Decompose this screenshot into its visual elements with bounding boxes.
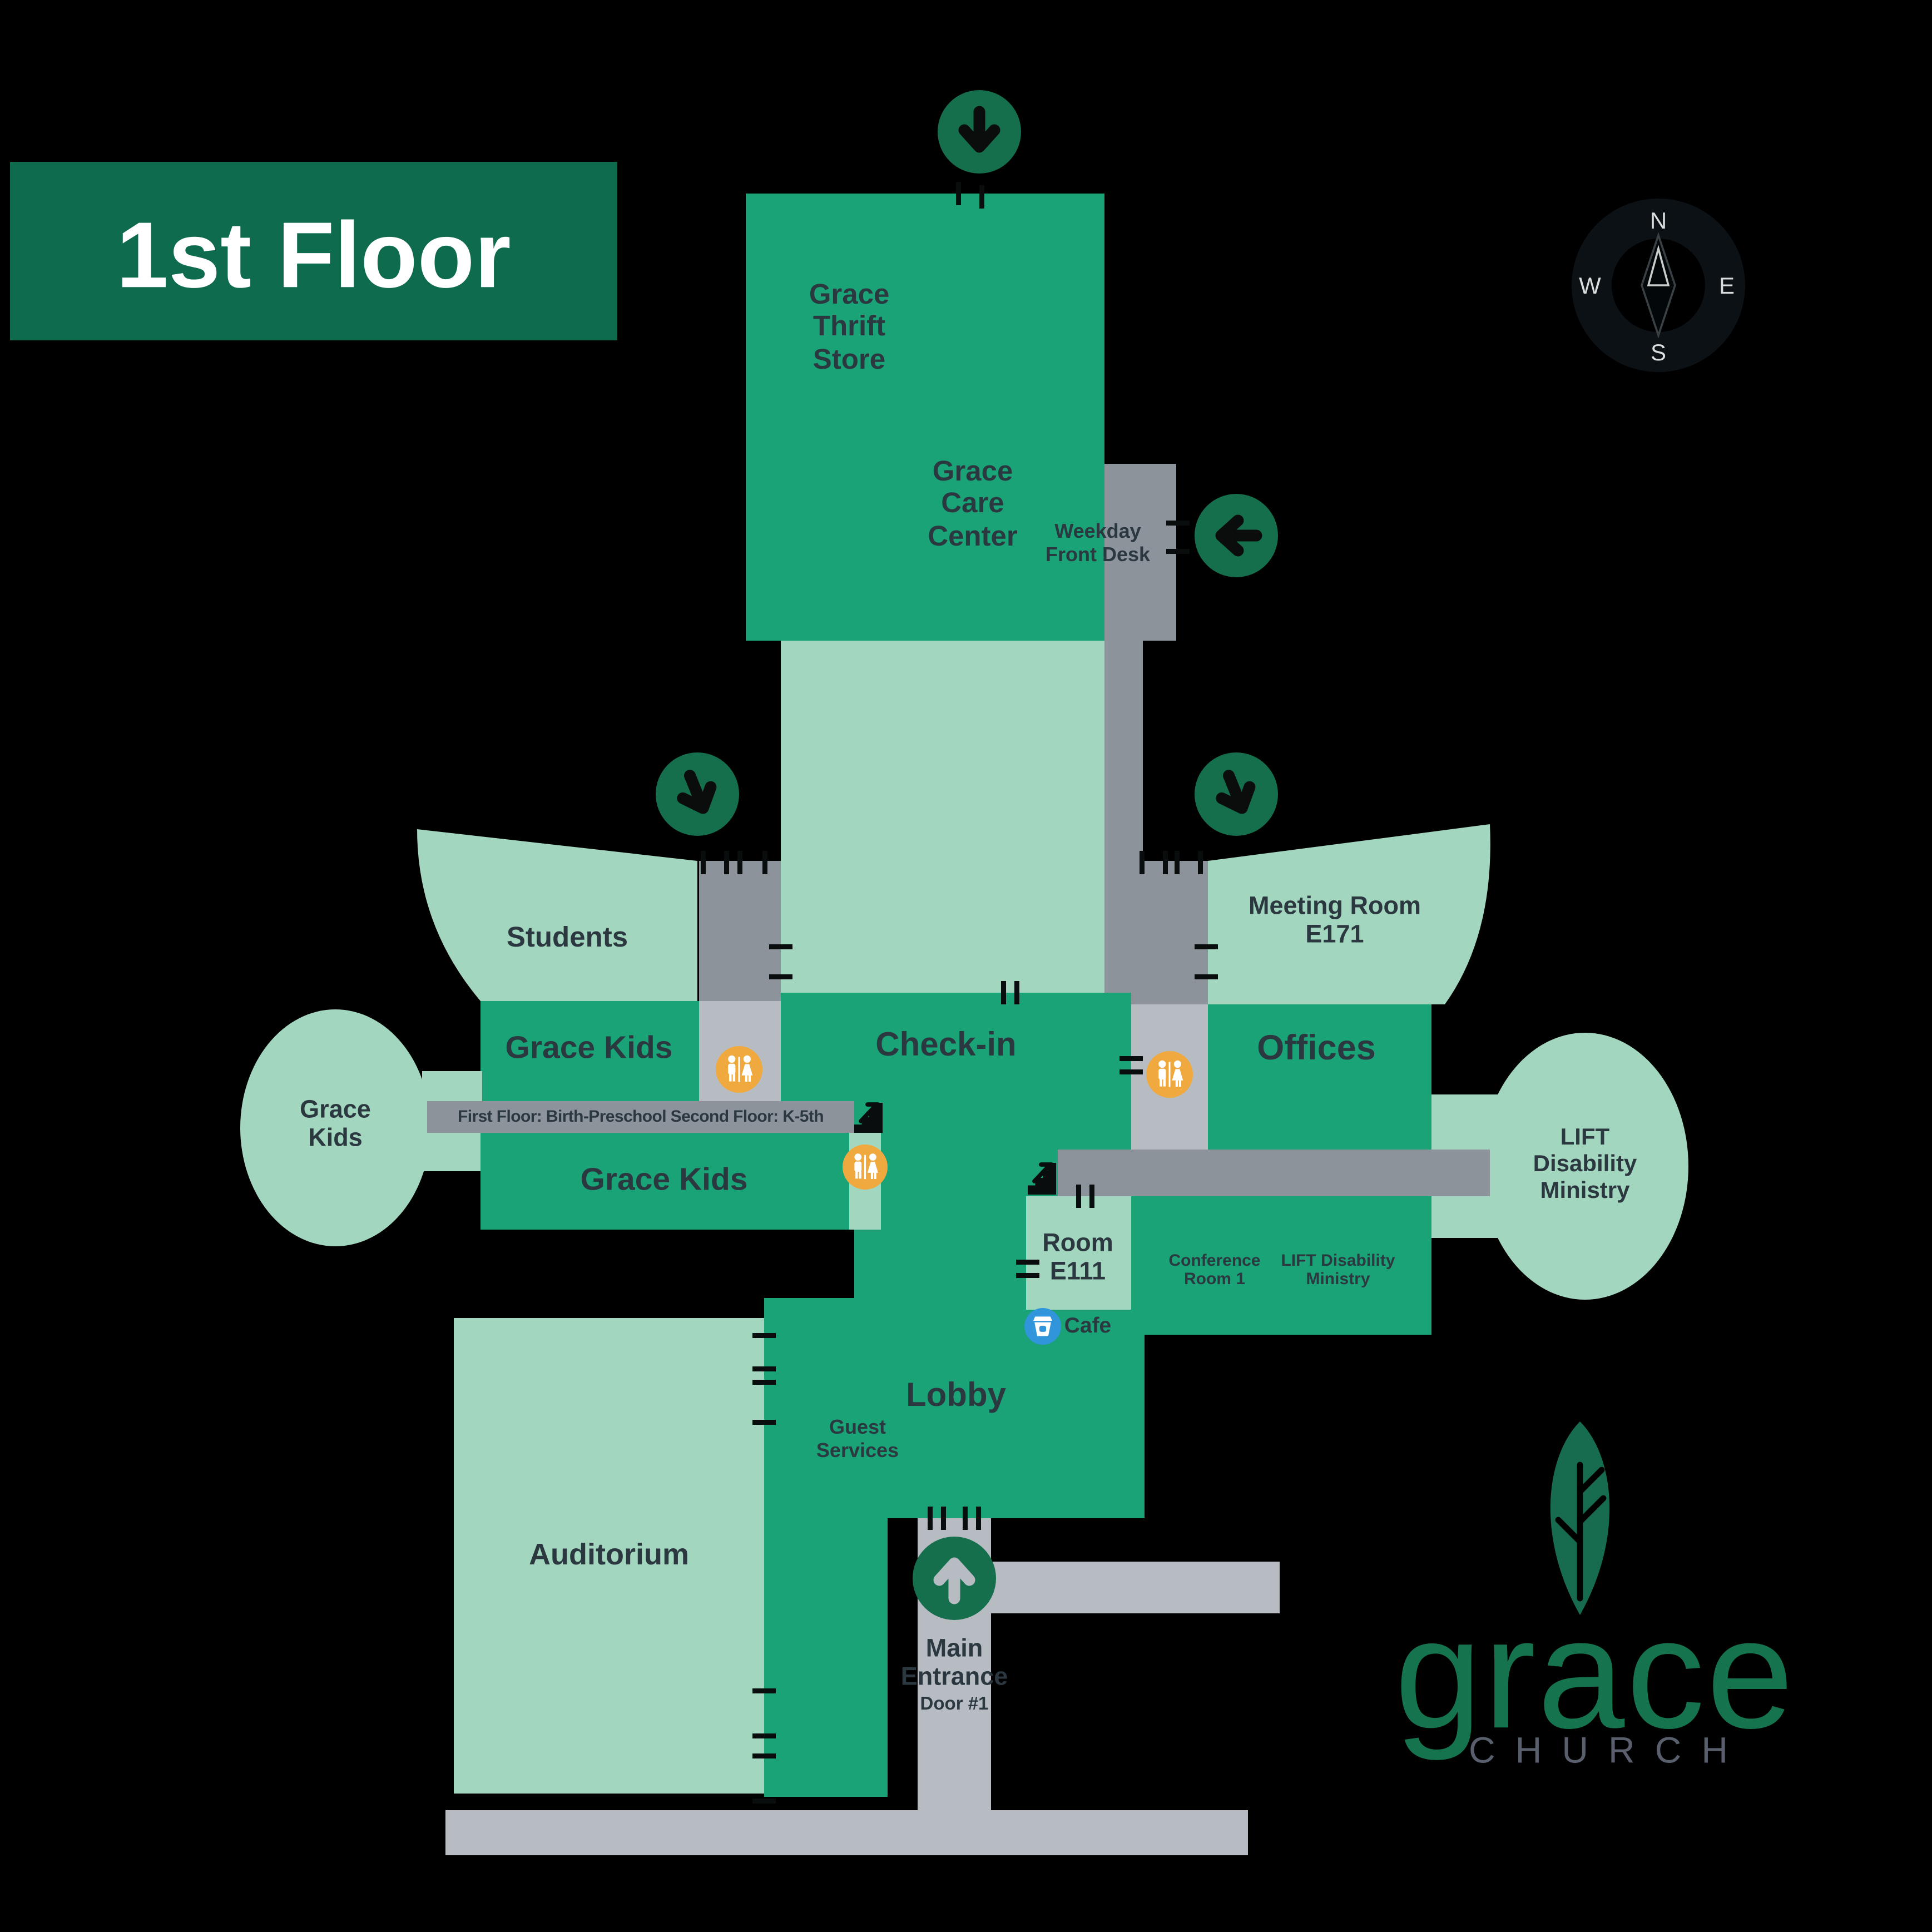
door-1-label: Door #1	[920, 1695, 989, 1716]
entrance-arrow-down-top-icon	[938, 90, 1021, 174]
door-tick	[752, 1366, 776, 1371]
door-tick	[762, 851, 767, 874]
door-tick	[1076, 1185, 1081, 1208]
students-label: Students	[507, 922, 628, 954]
lobby-label: Lobby	[906, 1378, 1006, 1415]
main-entrance-arrow-up-icon	[913, 1537, 996, 1620]
auditorium-label: Auditorium	[529, 1538, 689, 1572]
door-tick	[769, 944, 792, 949]
door-tick	[752, 1799, 776, 1803]
door-tick	[956, 182, 960, 205]
entrance-arrow-down-left-icon	[656, 752, 739, 836]
floor-banner: 1st Floor	[10, 162, 617, 340]
main-entrance-label: Main Entrance	[901, 1635, 1008, 1692]
conference-room-label: Conference Room 1	[1168, 1252, 1260, 1290]
door-tick	[752, 1753, 776, 1758]
room-e111-label: Room E111	[1042, 1230, 1113, 1287]
entrance-arrow-left-icon	[1195, 494, 1278, 577]
door-tick	[737, 851, 742, 874]
stair-corridor-right	[1131, 861, 1208, 1004]
east-walkway	[991, 1562, 1280, 1613]
door-tick	[769, 974, 792, 979]
stairs-icon-right	[1026, 1158, 1058, 1195]
grace-kids-1-label: Grace Kids	[506, 1032, 673, 1068]
compass-w: W	[1579, 273, 1601, 299]
door-tick	[1001, 981, 1005, 1004]
door-tick	[1195, 974, 1218, 979]
door-tick	[752, 1333, 776, 1337]
offices-label: Offices	[1257, 1029, 1376, 1069]
stair-corridor-left	[699, 861, 781, 1001]
cafe-icon	[1024, 1308, 1061, 1345]
door-tick	[1166, 521, 1190, 525]
guest-services-label: Guest Services	[816, 1417, 899, 1463]
door-tick	[1175, 851, 1179, 874]
lobby-south-strip	[764, 1518, 888, 1797]
checkin-label: Check-in	[875, 1027, 1016, 1065]
lift-ministry-label: LIFT Disability Ministry	[1281, 1252, 1395, 1290]
door-tick	[752, 1420, 776, 1424]
logo-sub: CHURCH	[1469, 1729, 1748, 1771]
stairs-icon-left	[853, 1099, 884, 1133]
door-tick	[752, 1688, 776, 1693]
grace-thrift-store-label: Grace Thrift Store	[809, 279, 890, 375]
door-tick	[976, 1507, 980, 1530]
floor-map-poster: 1st Floor N E S W Grace Thrift Store Gra…	[0, 0, 1932, 1932]
map-stage: 1st Floor N E S W Grace Thrift Store Gra…	[0, 0, 1932, 1932]
grace-kids-2-label: Grace Kids	[581, 1163, 748, 1200]
compass-n: N	[1650, 207, 1667, 234]
door-tick	[752, 1733, 776, 1738]
room-offices	[1208, 1004, 1431, 1150]
door-tick	[1089, 1185, 1094, 1208]
meeting-room-label: Meeting Room E171	[1249, 893, 1421, 950]
compass-s: S	[1651, 339, 1666, 365]
door-tick	[1119, 1069, 1143, 1074]
cafe-label: Cafe	[1064, 1314, 1112, 1339]
entrance-arrow-down-right-icon	[1195, 752, 1278, 836]
door-tick	[1195, 944, 1218, 949]
door-tick	[752, 1380, 776, 1384]
door-tick	[1119, 1056, 1143, 1061]
door-tick	[1198, 851, 1202, 874]
central-hall	[781, 641, 1104, 993]
door-tick	[701, 851, 705, 874]
door-tick	[724, 851, 729, 874]
room-students-shape	[410, 818, 704, 1008]
door-tick	[928, 1507, 932, 1530]
page-title: 1st Floor	[116, 201, 511, 308]
hall-note-label: First Floor: Birth-Preschool Second Floo…	[458, 1108, 824, 1127]
restroom-icon-center	[843, 1145, 888, 1190]
hall-corridor-right	[1058, 1150, 1490, 1196]
door-tick	[1166, 549, 1190, 553]
door-tick	[1163, 851, 1167, 874]
door-tick	[1016, 1260, 1039, 1264]
compass-e: E	[1719, 273, 1735, 299]
grace-kids-oval-label: Grace Kids	[300, 1096, 371, 1153]
door-tick	[1016, 1273, 1039, 1277]
compass-icon: N E S W	[1565, 192, 1752, 379]
restroom-icon-right	[1146, 1051, 1193, 1098]
south-walkway	[445, 1810, 1248, 1855]
door-tick	[1014, 981, 1019, 1004]
weekday-front-desk-label: Weekday Front Desk	[1046, 521, 1150, 567]
door-tick	[963, 1507, 967, 1530]
door-tick	[1140, 851, 1144, 874]
grace-care-center-label: Grace Care Center	[928, 455, 1018, 552]
door-tick	[979, 185, 984, 209]
door-tick	[941, 1507, 945, 1530]
restroom-icon-left	[716, 1046, 762, 1093]
room-grace-thrift-store	[746, 194, 1104, 641]
lift-oval-label: LIFT Disability Ministry	[1533, 1124, 1637, 1205]
